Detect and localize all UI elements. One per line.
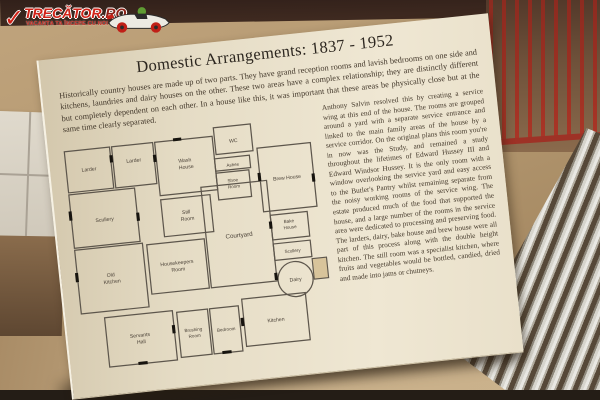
room-label: Courtyard [225, 231, 253, 241]
room-label: Bake House [283, 218, 298, 231]
checkmark-icon: ✓ [4, 4, 24, 32]
room-label: WC [229, 138, 238, 145]
watermark-tagline: VACANȚA TA ÎNCEPE CU NOI [26, 21, 108, 27]
rack-bar [515, 0, 519, 140]
room-larder-1: Larder [64, 147, 113, 193]
photo-scene: Domestic Arrangements: 1837 - 1952 Histo… [0, 0, 600, 400]
rack-bar [567, 0, 571, 140]
room-old-kitchen: Old Kitchen [75, 243, 149, 314]
floor-plan-svg: Larder Larder Wash House Scullery [57, 112, 340, 386]
room-brew-house: Brew House [257, 143, 317, 212]
room-label: Dairy [289, 276, 302, 283]
room-label: Housekeepers Room [160, 259, 196, 275]
room-label: Larder [126, 157, 142, 165]
room-brushing-room: Brushing Room [177, 309, 213, 357]
rack-bar [528, 0, 532, 140]
room-housekeepers: Housekeepers Room [147, 239, 210, 294]
room-scullery-right: Scullery [273, 240, 312, 260]
room-label: Servants Hall [130, 332, 153, 347]
room-label: Scullery [95, 216, 114, 224]
room-dairy: Dairy [276, 260, 315, 299]
room-label: Ashes [226, 162, 240, 168]
rack-bar [580, 0, 584, 140]
room-label: Brushing Room [184, 326, 204, 339]
rack-bar [541, 0, 545, 140]
body-text: Anthony Salvin resolved this by creating… [321, 86, 501, 283]
watermark-logo: ✓ TRECĂTOR.RO VACANȚA TA ÎNCEPE CU NOI [2, 2, 172, 38]
room-kitchen: Kitchen [242, 293, 311, 347]
red-wire-rack [486, 0, 600, 152]
shaded-room [312, 257, 329, 279]
info-board: Domestic Arrangements: 1837 - 1952 Histo… [36, 13, 523, 400]
rack-bar [554, 0, 558, 140]
room-scullery-top: Scullery [69, 188, 140, 248]
rack-bar [593, 0, 597, 140]
car-icon [106, 2, 172, 34]
rack-bar [502, 0, 506, 140]
room-label: Wash House [178, 157, 194, 171]
floor-plan-diagram: Larder Larder Wash House Scullery [57, 112, 340, 386]
room-bedroom: Bedroom [209, 306, 242, 354]
room-label: Still Room [180, 209, 195, 223]
room-bake-house: Bake House [270, 211, 310, 240]
room-label: Bedroom [217, 326, 236, 333]
room-servants-hall: Servants Hall [105, 311, 178, 367]
room-label: Old Kitchen [103, 272, 122, 286]
room-courtyard: Courtyard [201, 180, 277, 287]
room-label: Larder [81, 166, 97, 174]
room-label: Kitchen [267, 317, 285, 325]
room-larder-2: Larder [112, 143, 157, 188]
room-label: Shoe Room [227, 177, 240, 189]
room-label: Brew House [273, 174, 302, 183]
room-ashes: Ashes [214, 155, 250, 171]
room-label: Scullery [284, 247, 301, 254]
room-wc: WC [213, 124, 253, 155]
